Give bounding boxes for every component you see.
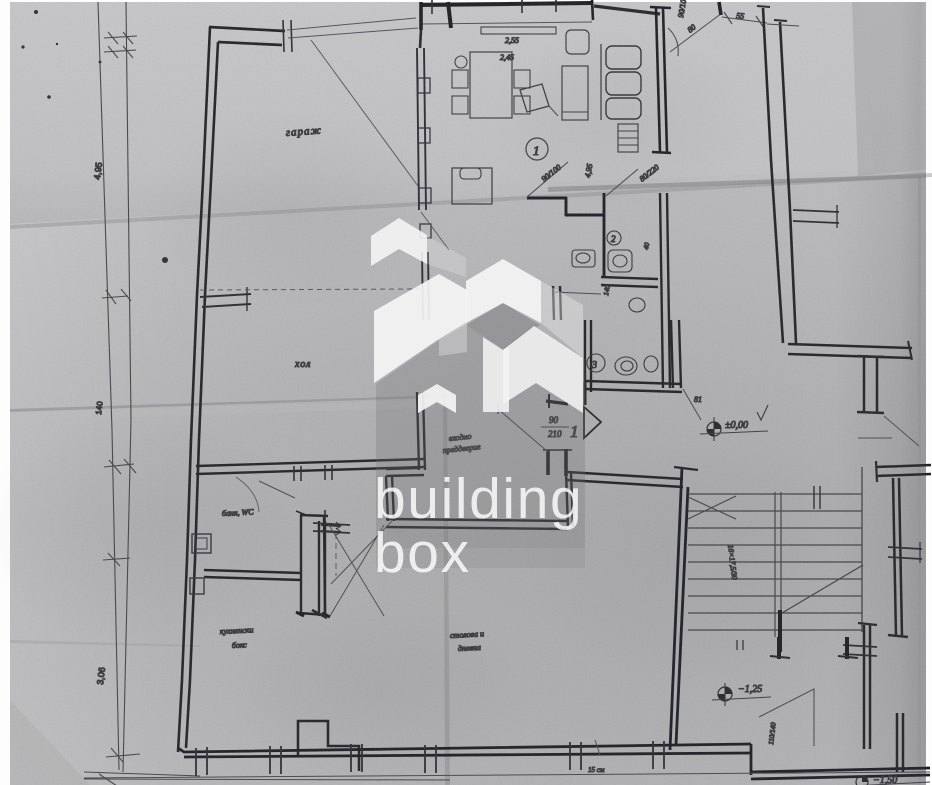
svg-text:box: box — [374, 521, 471, 585]
